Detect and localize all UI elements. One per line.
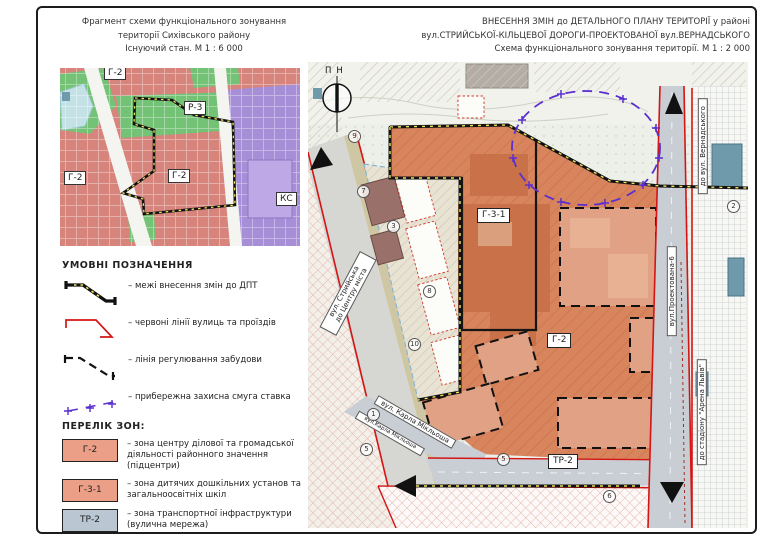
legend-title: УМОВНІ ПОЗНАЧЕННЯ bbox=[62, 260, 314, 271]
south-hatch-area bbox=[378, 486, 692, 528]
title-line: території Сихівського району bbox=[60, 30, 308, 44]
zone-list: ПЕРЕЛІК ЗОН: Г-2 – зона центру ділової т… bbox=[62, 421, 320, 532]
zone-row: ТР-2 – зона транспортної інфраструктури … bbox=[62, 509, 320, 532]
legend-item-label: – прибережна захисна смуга ставка bbox=[128, 389, 298, 403]
red-street-line-icon bbox=[62, 315, 120, 345]
pond-protection-line-icon bbox=[62, 389, 120, 419]
circled-number: 8 bbox=[423, 285, 436, 298]
zone-desc: – зона транспортної інфраструктури (вули… bbox=[127, 509, 315, 531]
mini-zone-label: Р-3 bbox=[184, 101, 206, 115]
zone-label-tr2: ТР-2 bbox=[548, 454, 578, 469]
zone-label-g2: Г-2 bbox=[547, 333, 571, 348]
title-line: Існуючий стан. М 1 : 6 000 bbox=[60, 43, 308, 57]
title-main-scheme: ВНЕСЕННЯ ЗМІН до ДЕТАЛЬНОГО ПЛАНУ ТЕРИТО… bbox=[396, 16, 750, 57]
zone-swatch-g2: Г-2 bbox=[62, 439, 118, 462]
legend-item-label: – лінія регулювання забудови bbox=[128, 352, 298, 366]
building-regulation-line-icon bbox=[62, 352, 120, 382]
street-label-arena: до стадіону "Арена Львів" bbox=[697, 359, 707, 465]
legend-item: – лінія регулювання забудови bbox=[62, 352, 314, 382]
street-label-vernadskoho: до вул. Вернадського bbox=[698, 98, 708, 194]
zone-swatch-g31: Г-3-1 bbox=[62, 479, 118, 502]
zone-swatch-tr2: ТР-2 bbox=[62, 509, 118, 532]
zone-row: Г-2 – зона центру ділової та громадської… bbox=[62, 439, 320, 472]
change-boundary-line-icon bbox=[62, 278, 120, 308]
legend-item: – межі внесення змін до ДПТ bbox=[62, 278, 314, 308]
circled-number: 1 bbox=[367, 408, 380, 421]
legend-item-label: – межі внесення змін до ДПТ bbox=[128, 278, 298, 292]
compass-label: ПН bbox=[325, 66, 348, 76]
title-line: Схема функціонального зонування територі… bbox=[396, 43, 750, 57]
circled-number: 10 bbox=[408, 338, 421, 351]
street-label-proektovana: вул.Проектована-6 bbox=[667, 246, 677, 336]
zone-row: Г-3-1 – зона дитячих дошкільних установ … bbox=[62, 479, 320, 502]
title-line: ВНЕСЕННЯ ЗМІН до ДЕТАЛЬНОГО ПЛАНУ ТЕРИТО… bbox=[396, 16, 750, 30]
circled-number: 5 bbox=[360, 443, 373, 456]
circled-number: 6 bbox=[603, 490, 616, 503]
zone-label-g31: Г-3-1 bbox=[477, 208, 510, 223]
title-line: Фрагмент схеми функціонального зонування bbox=[60, 16, 308, 30]
plan-sheet: { "titles": { "left": [ "Фрагмент схеми … bbox=[0, 0, 763, 540]
mini-zone-label: Г-2 bbox=[168, 169, 190, 183]
mini-zone-label: КС bbox=[276, 192, 297, 206]
circled-number: 2 bbox=[727, 200, 740, 213]
legend-item-label: – червоні лінії вулиць та проїздів bbox=[128, 315, 298, 329]
legend: УМОВНІ ПОЗНАЧЕННЯ – межі внесення змін д… bbox=[62, 260, 314, 419]
mini-zone-label: Г-2 bbox=[64, 171, 86, 185]
circled-number: 5 bbox=[497, 453, 510, 466]
zone-desc: – зона дитячих дошкільних установ та заг… bbox=[127, 479, 315, 501]
zone-desc: – зона центру ділової та громадської дія… bbox=[127, 439, 315, 472]
legend-item: – прибережна захисна смуга ставка bbox=[62, 389, 314, 419]
zone-list-title: ПЕРЕЛІК ЗОН: bbox=[62, 421, 320, 432]
mini-map-drawing bbox=[60, 68, 300, 246]
title-line: вул.СТРИЙСЬКОЇ-КІЛЬЦЕВОЇ ДОРОГИ-ПРОЕКТОВ… bbox=[396, 30, 750, 44]
legend-item: – червоні лінії вулиць та проїздів bbox=[62, 315, 314, 345]
main-zoning-map: ПН Г-3-1 Г-2 ТР-2 вул. Стрийська до Цент… bbox=[308, 62, 748, 528]
main-map-drawing bbox=[308, 62, 748, 528]
mini-zoning-map: Г-2 Р-3 Г-2 Г-2 КС bbox=[60, 68, 300, 246]
title-fragment-scheme: Фрагмент схеми функціонального зонування… bbox=[60, 16, 308, 57]
mini-zone-label: Г-2 bbox=[104, 68, 126, 80]
circled-number: 7 bbox=[357, 185, 370, 198]
circled-number: 3 bbox=[387, 220, 400, 233]
circled-number: 9 bbox=[348, 130, 361, 143]
